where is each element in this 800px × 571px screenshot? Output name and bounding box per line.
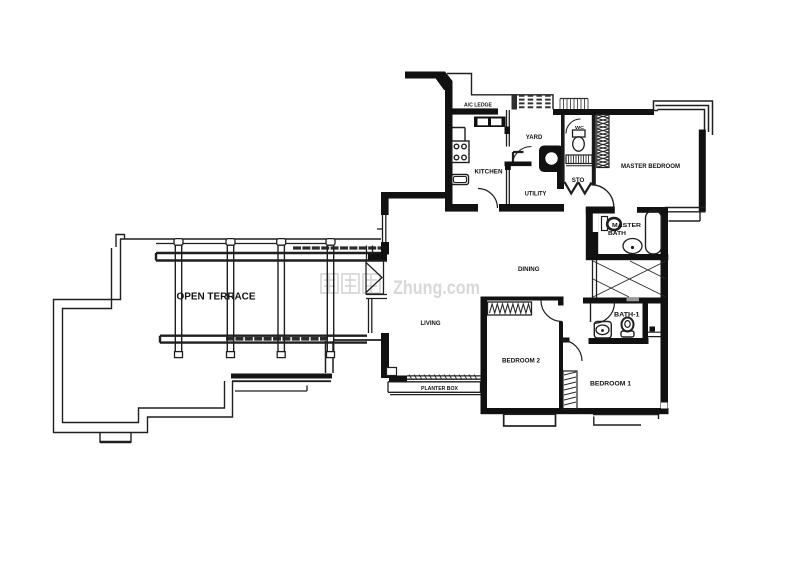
svg-text:OPEN TERRACE: OPEN TERRACE bbox=[177, 291, 256, 302]
svg-text:Zhung.com: Zhung.com bbox=[393, 277, 480, 299]
svg-text:BEDROOM 1: BEDROOM 1 bbox=[590, 381, 631, 388]
svg-text:MASTER: MASTER bbox=[612, 223, 641, 229]
svg-text:WC: WC bbox=[575, 125, 585, 131]
svg-text:BATH: BATH bbox=[608, 231, 626, 237]
svg-text:BATH-1: BATH-1 bbox=[614, 311, 640, 318]
svg-text:KITCHEN: KITCHEN bbox=[475, 169, 503, 176]
svg-text:STO: STO bbox=[572, 177, 585, 184]
svg-text:LIVING: LIVING bbox=[421, 320, 441, 327]
svg-text:PLANTER BOX: PLANTER BOX bbox=[421, 386, 458, 392]
svg-text:A/C LEDGE: A/C LEDGE bbox=[464, 103, 492, 109]
svg-text:UTILITY: UTILITY bbox=[525, 191, 547, 198]
svg-text:DINING: DINING bbox=[518, 266, 540, 273]
svg-text:BEDROOM 2: BEDROOM 2 bbox=[502, 358, 540, 365]
svg-text:MASTER BEDROOM: MASTER BEDROOM bbox=[621, 163, 680, 170]
svg-text:YARD: YARD bbox=[526, 134, 543, 141]
